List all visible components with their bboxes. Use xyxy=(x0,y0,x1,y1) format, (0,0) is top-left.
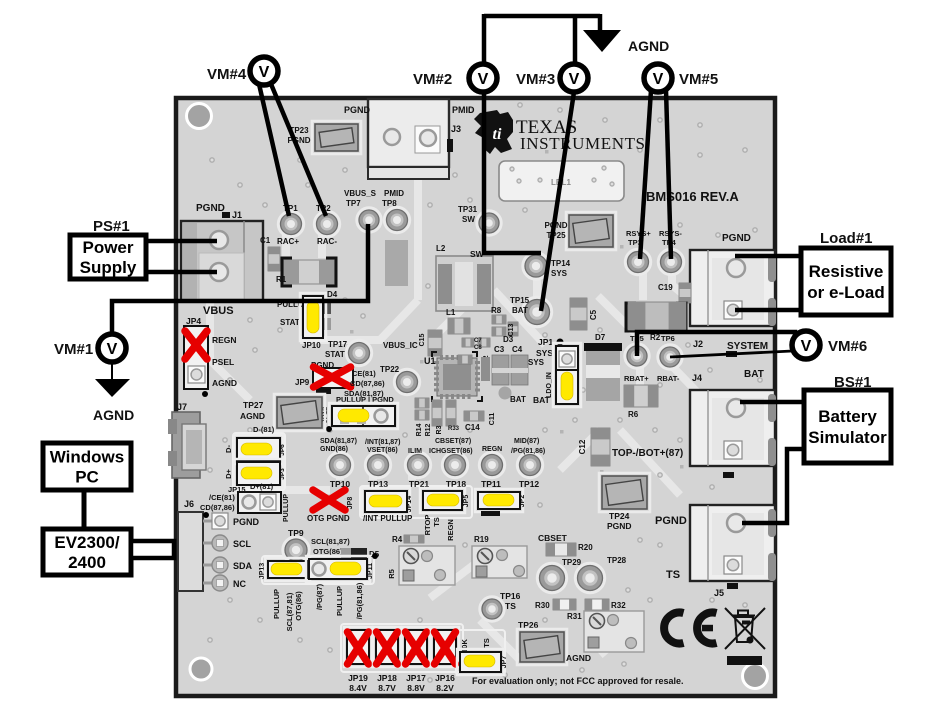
svg-text:/INT PULLUP: /INT PULLUP xyxy=(363,514,413,523)
svg-text:TP31: TP31 xyxy=(458,205,478,214)
svg-text:JP6: JP6 xyxy=(279,444,286,456)
svg-text:VSET(86): VSET(86) xyxy=(367,447,398,454)
svg-text:PMID: PMID xyxy=(452,105,475,115)
svg-text:RBAT+: RBAT+ xyxy=(624,374,649,383)
svg-text:JP18: JP18 xyxy=(377,673,397,683)
svg-text:TP11: TP11 xyxy=(481,479,501,489)
svg-text:C7: C7 xyxy=(474,338,482,344)
svg-text:C1: C1 xyxy=(260,236,271,245)
svg-text:REGN: REGN xyxy=(482,446,502,453)
svg-text:TP17: TP17 xyxy=(328,340,348,349)
svg-text:TP6: TP6 xyxy=(661,334,675,343)
svg-text:TP24: TP24 xyxy=(609,511,630,521)
svg-text:R1: R1 xyxy=(276,275,287,284)
svg-text:JP17: JP17 xyxy=(406,673,426,683)
svg-text:PGND: PGND xyxy=(722,233,751,244)
svg-text:JP19: JP19 xyxy=(348,673,368,683)
svg-text:BAT: BAT xyxy=(533,395,551,405)
svg-text:AGND: AGND xyxy=(628,38,669,54)
svg-text:8.4V: 8.4V xyxy=(349,683,367,693)
svg-text:V: V xyxy=(801,338,812,355)
svg-text:C3: C3 xyxy=(494,345,505,354)
svg-text:TP29: TP29 xyxy=(562,558,582,567)
svg-text:AGND: AGND xyxy=(240,411,265,421)
svg-text:C15: C15 xyxy=(419,333,426,346)
svg-text:R32: R32 xyxy=(611,601,626,610)
svg-text:ti: ti xyxy=(493,126,502,143)
svg-text:J4: J4 xyxy=(692,373,702,383)
svg-text:CE(81): CE(81) xyxy=(352,369,376,378)
svg-text:TS: TS xyxy=(505,601,516,611)
svg-text:PGND: PGND xyxy=(233,517,260,527)
svg-text:D+(81): D+(81) xyxy=(250,482,274,491)
svg-text:D-: D- xyxy=(224,445,233,453)
svg-text:J5: J5 xyxy=(714,588,724,598)
svg-text:VM#2: VM#2 xyxy=(413,71,452,88)
svg-text:R30: R30 xyxy=(535,601,550,610)
svg-text:L2: L2 xyxy=(436,244,446,253)
svg-text:JP16: JP16 xyxy=(435,673,455,683)
svg-text:R4: R4 xyxy=(392,535,403,544)
svg-text:D4: D4 xyxy=(327,290,338,299)
svg-text:or e-Load: or e-Load xyxy=(807,283,884,302)
svg-text:V: V xyxy=(107,341,118,358)
svg-text:TS: TS xyxy=(432,517,441,527)
svg-text:D3: D3 xyxy=(503,335,514,344)
svg-text:JP8: JP8 xyxy=(347,497,354,510)
svg-text:ICHGSET(86): ICHGSET(86) xyxy=(429,448,473,455)
svg-text:L1: L1 xyxy=(446,308,456,317)
svg-text:R3: R3 xyxy=(436,425,443,434)
svg-text:LDO_IN: LDO_IN xyxy=(546,372,553,398)
svg-text:V: V xyxy=(569,71,580,88)
svg-text:RAC-: RAC- xyxy=(317,237,337,246)
svg-text:SDA: SDA xyxy=(233,561,253,571)
svg-text:BAT: BAT xyxy=(744,369,764,380)
svg-text:C14: C14 xyxy=(465,423,480,432)
svg-text:R6: R6 xyxy=(628,410,639,419)
svg-text:Battery: Battery xyxy=(818,407,877,426)
svg-text:MID(87): MID(87) xyxy=(514,438,539,445)
svg-text:/INT(81,87): /INT(81,87) xyxy=(365,439,400,446)
svg-text:V: V xyxy=(478,71,489,88)
svg-text:REGN: REGN xyxy=(446,519,455,541)
svg-text:INSTRUMENTS: INSTRUMENTS xyxy=(520,134,646,153)
svg-text:OTG(86): OTG(86) xyxy=(313,547,343,556)
svg-text:J1: J1 xyxy=(232,210,242,220)
svg-text:TP27: TP27 xyxy=(243,400,264,410)
svg-text:C12: C12 xyxy=(578,439,587,454)
svg-text:BAT: BAT xyxy=(512,306,528,315)
svg-text:J7: J7 xyxy=(177,402,187,412)
svg-text:TP22: TP22 xyxy=(380,365,400,374)
svg-text:8.8V: 8.8V xyxy=(407,683,425,693)
svg-text:STAT: STAT xyxy=(325,350,345,359)
svg-text:Resistive: Resistive xyxy=(809,262,884,281)
svg-text:/CE(81): /CE(81) xyxy=(209,493,235,502)
svg-text:OTG(86): OTG(86) xyxy=(294,591,303,621)
svg-text:SCL(81,87): SCL(81,87) xyxy=(311,537,350,546)
svg-text:SCL(87,81): SCL(87,81) xyxy=(285,592,294,631)
svg-text:PGND: PGND xyxy=(607,521,632,531)
svg-text:SYSTEM: SYSTEM xyxy=(727,341,768,352)
svg-text:2400: 2400 xyxy=(68,553,106,572)
svg-text:PULLUP: PULLUP xyxy=(335,586,344,616)
svg-text:PGND: PGND xyxy=(344,105,371,115)
svg-text:CBSET: CBSET xyxy=(538,533,568,543)
svg-text:CD(87,86): CD(87,86) xyxy=(200,503,235,512)
svg-text:Supply: Supply xyxy=(80,258,137,277)
svg-text:J6: J6 xyxy=(184,499,194,509)
svg-text:SW: SW xyxy=(462,215,475,224)
svg-text:BAT: BAT xyxy=(510,395,526,404)
svg-text:RSYS+: RSYS+ xyxy=(626,229,651,238)
svg-text:VM#1: VM#1 xyxy=(54,341,93,358)
svg-text:JP9: JP9 xyxy=(295,378,310,387)
svg-text:PS#1: PS#1 xyxy=(93,218,130,235)
svg-text:R19: R19 xyxy=(474,535,489,544)
svg-text:SCL: SCL xyxy=(233,539,252,549)
svg-text:RBAT-: RBAT- xyxy=(657,374,680,383)
svg-text:Load#1: Load#1 xyxy=(820,230,873,247)
svg-text:BMS016 REV.A: BMS016 REV.A xyxy=(646,189,739,204)
svg-text:C8: C8 xyxy=(474,345,482,351)
svg-text:R5: R5 xyxy=(387,569,396,579)
svg-text:GND(86): GND(86) xyxy=(320,446,348,453)
svg-text:C5: C5 xyxy=(589,309,598,320)
svg-text:JP7: JP7 xyxy=(501,656,508,669)
svg-text:PMID: PMID xyxy=(384,189,404,198)
svg-text:AGND: AGND xyxy=(566,653,591,663)
svg-text:/PG(81,86): /PG(81,86) xyxy=(511,448,545,455)
svg-text:TS: TS xyxy=(666,569,680,581)
svg-text:J2: J2 xyxy=(693,339,703,349)
svg-text:J3: J3 xyxy=(451,124,461,134)
svg-text:For evaluation only; not FCC a: For evaluation only; not FCC approved fo… xyxy=(472,676,684,686)
svg-text:TP15: TP15 xyxy=(510,296,530,305)
svg-text:TP16: TP16 xyxy=(500,591,521,601)
svg-text:SYS: SYS xyxy=(536,348,553,358)
svg-text:CD(87,86): CD(87,86) xyxy=(350,379,385,388)
svg-text:R33: R33 xyxy=(448,426,460,432)
svg-text:REGN: REGN xyxy=(212,335,237,345)
svg-text:TP28: TP28 xyxy=(607,556,627,565)
svg-text:/PG(81,86): /PG(81,86) xyxy=(355,582,364,619)
svg-text:V: V xyxy=(259,64,270,81)
svg-text:JP11: JP11 xyxy=(367,563,374,579)
svg-text:OTG PGND: OTG PGND xyxy=(307,514,350,523)
svg-text:R14: R14 xyxy=(416,423,423,436)
svg-text:RTOP: RTOP xyxy=(423,515,432,536)
svg-text:PGND: PGND xyxy=(655,515,687,527)
svg-text:Simulator: Simulator xyxy=(808,428,887,447)
svg-text:Windows: Windows xyxy=(50,447,124,466)
svg-text:JP1: JP1 xyxy=(538,337,553,347)
svg-text:8.2V: 8.2V xyxy=(436,683,454,693)
svg-text:JP14: JP14 xyxy=(406,496,413,512)
svg-text:EV2300/: EV2300/ xyxy=(54,533,119,552)
svg-text:C4: C4 xyxy=(512,345,523,354)
svg-text:NC: NC xyxy=(233,579,246,589)
svg-text:TS: TS xyxy=(482,638,491,648)
svg-text:TP9: TP9 xyxy=(288,528,304,538)
svg-text:V: V xyxy=(653,71,664,88)
svg-text:VBUS_IC: VBUS_IC xyxy=(383,341,418,350)
svg-text:TP8: TP8 xyxy=(382,199,397,208)
svg-text:R31: R31 xyxy=(567,612,582,621)
svg-text:TOP-/BOT+(87): TOP-/BOT+(87) xyxy=(612,448,683,459)
svg-text:/PG(87): /PG(87) xyxy=(315,583,324,610)
svg-text:D+: D+ xyxy=(224,468,233,478)
svg-text:R8: R8 xyxy=(491,306,502,315)
svg-text:10K: 10K xyxy=(460,639,469,653)
svg-text:RAC+: RAC+ xyxy=(277,237,299,246)
svg-text:VM#6: VM#6 xyxy=(828,338,867,355)
svg-text:CBSET(87): CBSET(87) xyxy=(435,438,471,445)
svg-text:U1: U1 xyxy=(424,356,436,366)
svg-text:R20: R20 xyxy=(578,543,593,552)
svg-text:VM#3: VM#3 xyxy=(516,71,555,88)
svg-text:PSEL: PSEL xyxy=(212,357,234,367)
svg-text:AGND: AGND xyxy=(93,407,134,423)
svg-text:PC: PC xyxy=(75,467,99,486)
svg-text:JP5: JP5 xyxy=(463,495,470,508)
svg-text:JP3: JP3 xyxy=(279,468,286,480)
svg-text:VM#5: VM#5 xyxy=(679,71,718,88)
svg-text:JP2: JP2 xyxy=(519,495,526,508)
svg-text:VM#4: VM#4 xyxy=(207,66,247,83)
svg-text:SDA(81,87): SDA(81,87) xyxy=(320,438,357,445)
svg-text:R12: R12 xyxy=(425,423,432,436)
svg-text:C19: C19 xyxy=(658,283,673,292)
svg-text:TP14: TP14 xyxy=(551,259,571,268)
svg-text:PGND: PGND xyxy=(196,203,225,214)
svg-text:D-(81): D-(81) xyxy=(253,425,275,434)
svg-text:TP25: TP25 xyxy=(546,231,566,240)
svg-text:VBUS_S: VBUS_S xyxy=(344,189,377,198)
svg-text:TP12: TP12 xyxy=(519,479,540,489)
svg-text:PULLUP: PULLUP xyxy=(283,494,290,522)
svg-text:JP10: JP10 xyxy=(302,341,321,350)
svg-text:R2: R2 xyxy=(650,333,661,342)
svg-text:C11: C11 xyxy=(489,413,496,426)
svg-text:SYS: SYS xyxy=(551,269,568,278)
svg-text:AGND: AGND xyxy=(212,378,237,388)
svg-text:STAT: STAT xyxy=(280,318,300,327)
svg-text:ILIM: ILIM xyxy=(408,448,422,455)
svg-text:VBUS: VBUS xyxy=(203,305,234,317)
svg-text:D7: D7 xyxy=(595,333,606,342)
svg-text:TP7: TP7 xyxy=(346,199,361,208)
svg-text:8.7V: 8.7V xyxy=(378,683,396,693)
svg-text:Power: Power xyxy=(82,238,133,257)
svg-text:SYS: SYS xyxy=(528,358,545,367)
svg-text:JP4: JP4 xyxy=(186,316,201,326)
svg-text:PULLUP: PULLUP xyxy=(272,589,281,619)
